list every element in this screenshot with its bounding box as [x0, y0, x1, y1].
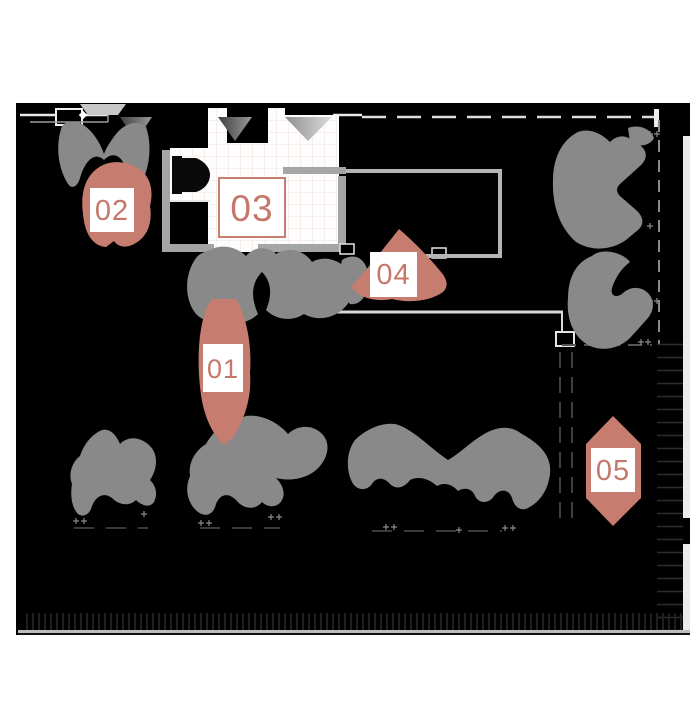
- marker-04-badge[interactable]: 04: [370, 252, 417, 297]
- floor-plan-svg: [0, 0, 700, 721]
- entry-mat: [80, 104, 126, 115]
- marker-01-badge[interactable]: 01: [203, 344, 243, 392]
- floor-plan-canvas: 01 02 03 04 05: [0, 0, 700, 721]
- bottom-wall-hatching: [18, 613, 690, 635]
- marker-01-label: 01: [207, 356, 239, 383]
- marker-02-badge[interactable]: 02: [90, 188, 134, 232]
- marker-03-badge[interactable]: 03: [218, 177, 286, 238]
- marker-05-badge[interactable]: 05: [591, 448, 635, 492]
- marker-04-label: 04: [376, 261, 410, 290]
- marker-05-label: 05: [596, 457, 630, 486]
- marker-03-label: 03: [230, 190, 273, 227]
- marker-02-label: 02: [95, 197, 129, 226]
- wall-hatching: [657, 338, 683, 632]
- door-jamb: [340, 244, 354, 254]
